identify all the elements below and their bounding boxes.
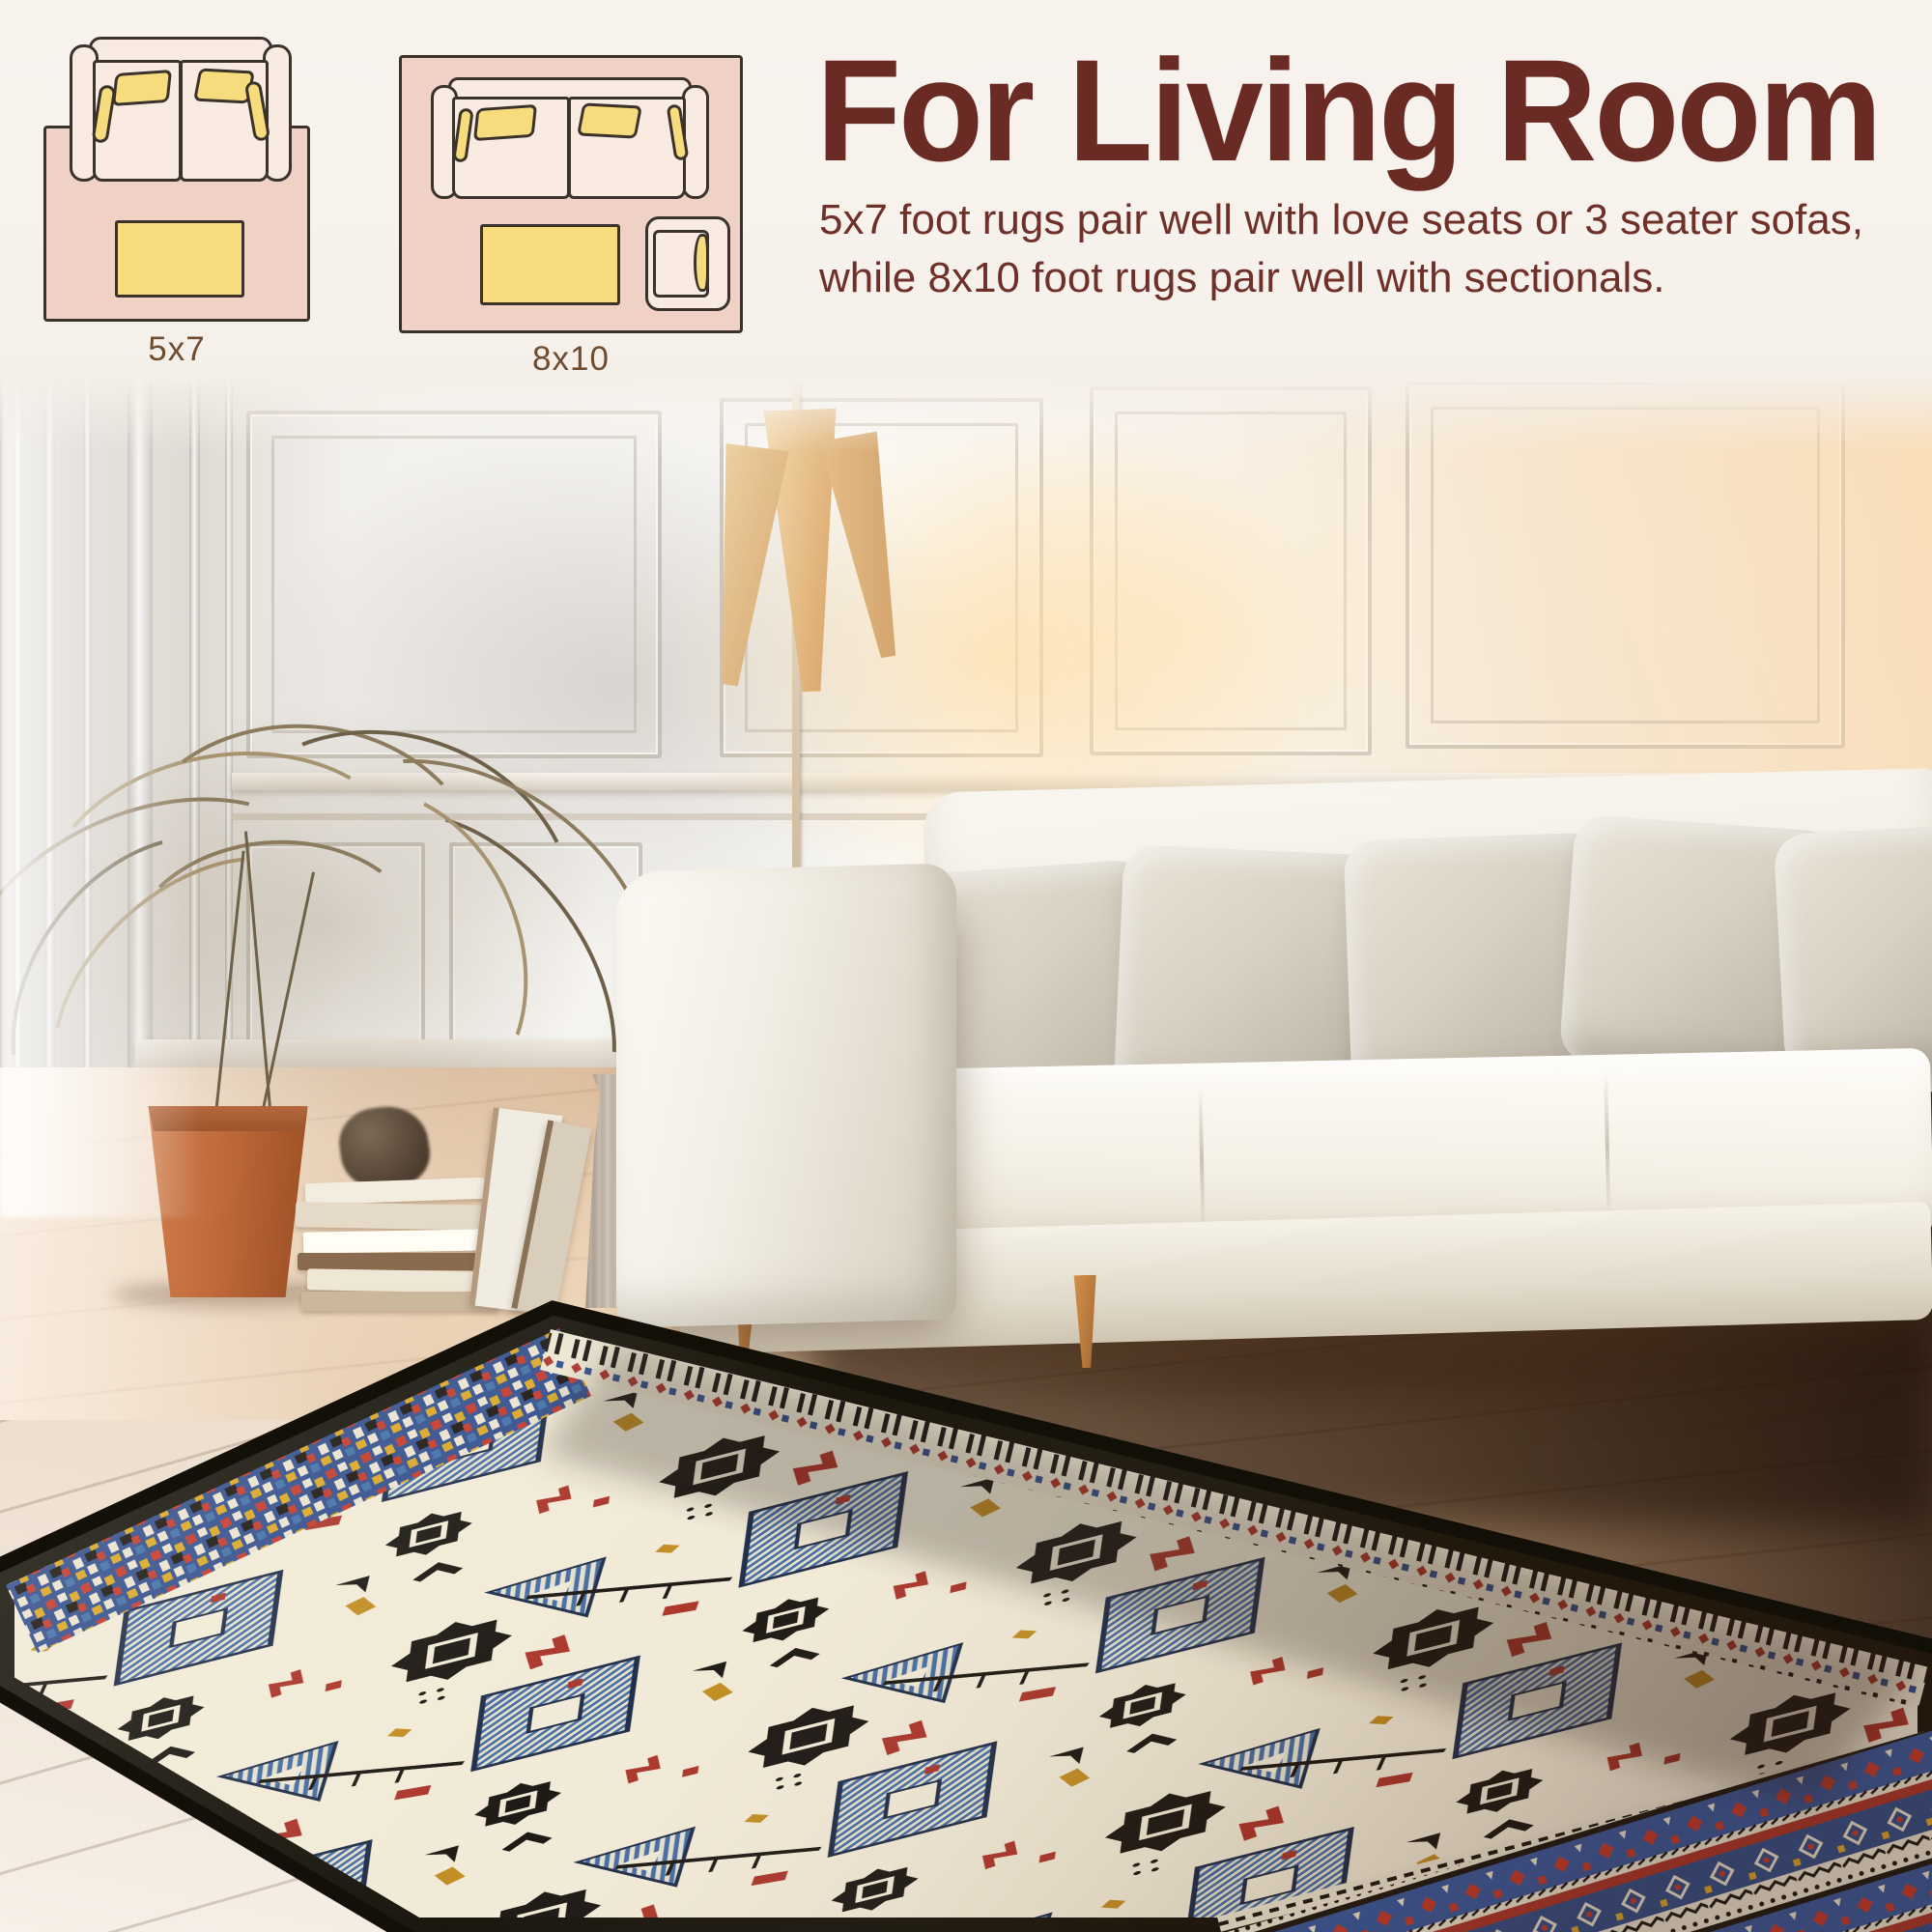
throw-pillow	[1774, 823, 1932, 1076]
subheading-text: 5x7 foot rugs pair well with love seats …	[819, 191, 1930, 307]
size-diagram-8x10: 8x10	[367, 0, 773, 375]
sofa-pillow-icon	[577, 102, 642, 138]
page-title: For Living Room	[816, 27, 1880, 194]
coffee-table-icon	[115, 220, 244, 298]
header-band: 5x7 8x10 For Living Room 5x7 foot rugs p…	[0, 0, 1932, 375]
size-label-5x7: 5x7	[43, 330, 310, 369]
coffee-table-icon	[480, 224, 620, 305]
cushion-seam	[1198, 1087, 1205, 1232]
armchair-pillow-icon	[694, 234, 709, 292]
cushion-seam	[1604, 1072, 1610, 1217]
header-photo-blend	[0, 375, 1932, 452]
area-rug	[0, 1236, 1932, 1932]
sofa-pillow-icon	[473, 104, 537, 141]
rug-product-infographic: 5x7 8x10 For Living Room 5x7 foot rugs p…	[0, 0, 1932, 1932]
size-diagram-5x7: 5x7	[0, 0, 367, 375]
sofa-pillow-icon	[112, 70, 172, 106]
book	[296, 1202, 493, 1231]
size-label-8x10: 8x10	[399, 340, 743, 379]
